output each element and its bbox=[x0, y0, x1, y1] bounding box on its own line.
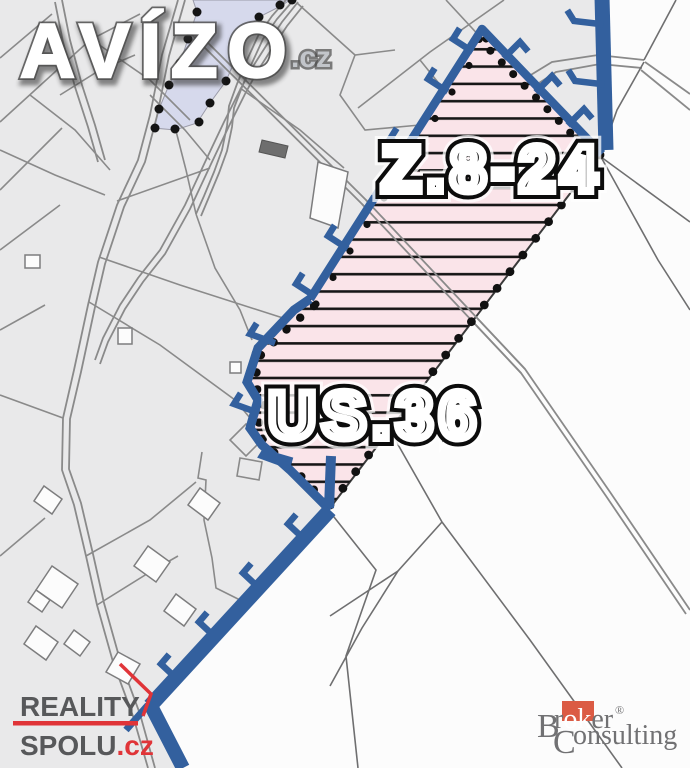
svg-text:SPOLU.cz: SPOLU.cz bbox=[20, 730, 154, 761]
svg-text:onsulting: onsulting bbox=[573, 720, 677, 751]
svg-text:®: ® bbox=[615, 703, 624, 717]
svg-text:.cz: .cz bbox=[291, 41, 331, 74]
svg-text:US.36: US.36 bbox=[268, 378, 481, 452]
svg-text:Z.8-24: Z.8-24 bbox=[382, 133, 603, 205]
svg-text:AVÍZO: AVÍZO bbox=[20, 9, 297, 94]
svg-text:REALITY: REALITY bbox=[20, 691, 140, 722]
